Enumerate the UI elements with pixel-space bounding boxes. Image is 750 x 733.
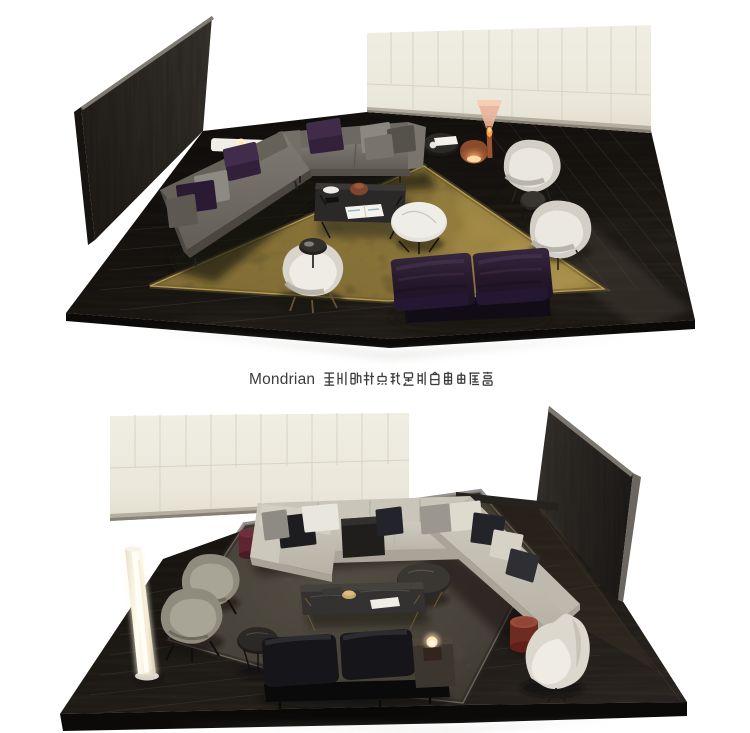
svg-text:Mondrian: Mondrian	[249, 371, 315, 388]
